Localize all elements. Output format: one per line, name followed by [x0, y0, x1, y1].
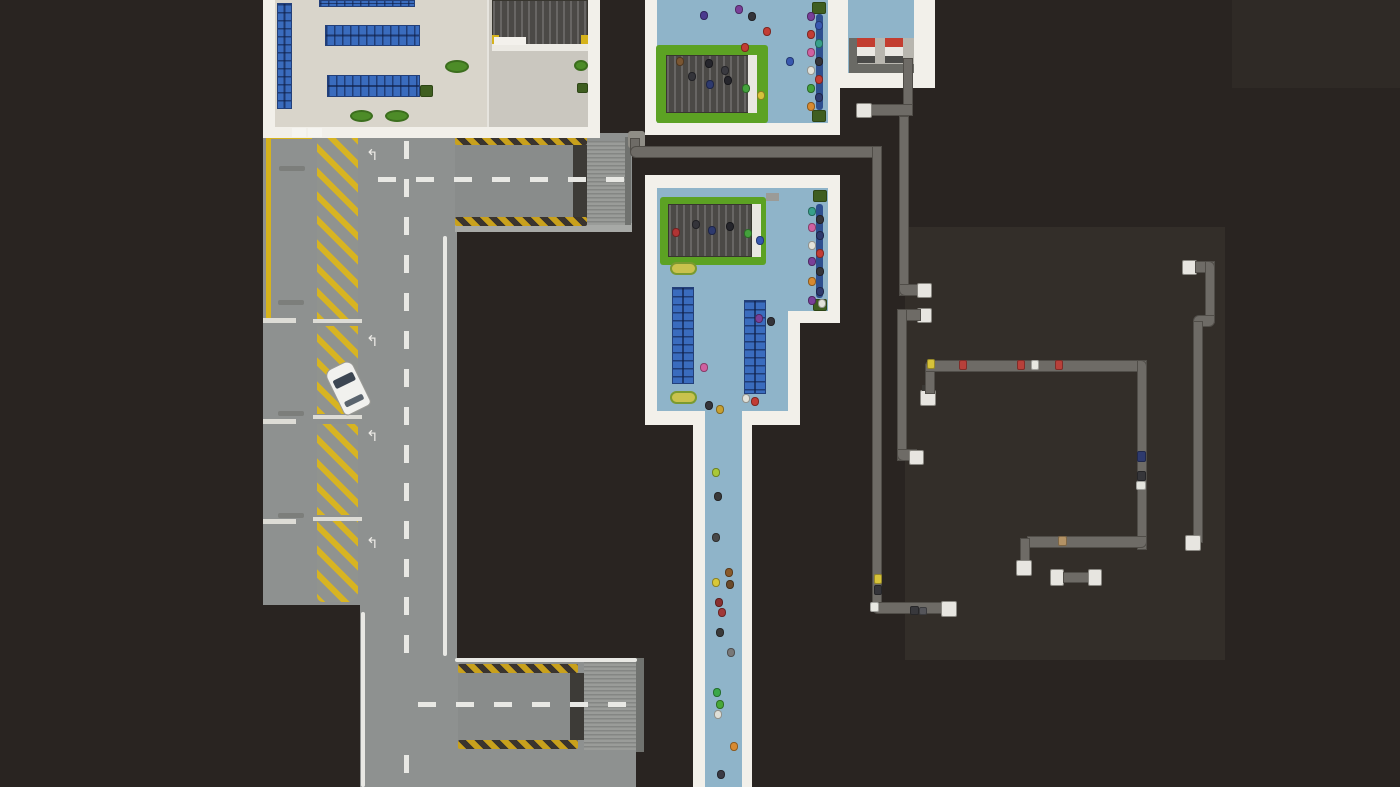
- corridor-floor: [705, 404, 742, 787]
- passenger[interactable]: [735, 5, 743, 14]
- passenger[interactable]: [706, 80, 714, 89]
- passenger[interactable]: [808, 257, 816, 266]
- belt-cap[interactable]: [917, 283, 932, 298]
- lane-dash-bottom-arm: [418, 702, 636, 707]
- passenger[interactable]: [808, 223, 816, 232]
- passenger[interactable]: [718, 608, 726, 617]
- passenger[interactable]: [714, 710, 722, 719]
- passenger[interactable]: [741, 43, 749, 52]
- bench[interactable]: [670, 262, 697, 275]
- passenger[interactable]: [756, 236, 764, 245]
- belt-cap[interactable]: [1088, 569, 1102, 586]
- passenger[interactable]: [808, 207, 816, 216]
- belt-cap[interactable]: [856, 103, 872, 118]
- lane-line-arm-top: [455, 658, 637, 662]
- passenger[interactable]: [742, 394, 750, 403]
- queue-plant-mid-top[interactable]: [813, 190, 827, 202]
- ramp-bottom-wall: [636, 658, 644, 752]
- passenger[interactable]: [713, 688, 721, 697]
- passenger[interactable]: [715, 598, 723, 607]
- passenger[interactable]: [725, 568, 733, 577]
- passenger[interactable]: [730, 742, 738, 751]
- checkin-desk-column[interactable]: [277, 3, 292, 109]
- passenger[interactable]: [724, 76, 732, 85]
- planter[interactable]: [577, 83, 588, 93]
- escalator-housing: [492, 44, 588, 51]
- scanner-machine-2-base: [885, 56, 903, 63]
- passenger[interactable]: [705, 59, 713, 68]
- ramp-bottom-caution-north: [458, 664, 578, 673]
- passenger[interactable]: [742, 84, 750, 93]
- parking-divider-3: [263, 519, 296, 524]
- game-canvas[interactable]: ↰↰↰↰: [0, 0, 1400, 787]
- baggage: [927, 359, 935, 369]
- hazard-zebra-3: [317, 424, 358, 515]
- passenger[interactable]: [807, 12, 815, 21]
- baggage: [874, 585, 882, 595]
- scanner-machine-1-top[interactable]: [857, 38, 875, 47]
- scanner-machine-1-base: [857, 56, 875, 63]
- belt-transfer-segment[interactable]: [1063, 572, 1089, 583]
- ramp-top-grate: [587, 141, 625, 225]
- passenger[interactable]: [748, 12, 756, 21]
- parking-stand-marker-2: [278, 300, 304, 305]
- scanner-machine-2-body[interactable]: [885, 47, 903, 56]
- parking-stand-marker-4: [278, 513, 304, 518]
- belt-cap[interactable]: [941, 601, 957, 617]
- belt-g-upper[interactable]: [1205, 261, 1215, 323]
- terminal-divider-line: [487, 0, 489, 127]
- passenger[interactable]: [815, 93, 823, 102]
- seating-bank-2[interactable]: [744, 300, 766, 394]
- passenger[interactable]: [767, 317, 775, 326]
- belt-cap[interactable]: [1050, 569, 1064, 586]
- escalator-tray: [494, 37, 526, 45]
- belt-cap[interactable]: [1016, 560, 1032, 576]
- escalator-north-comb: [748, 55, 757, 113]
- zone-baggage-overlay: [905, 227, 1225, 660]
- bay-line-2: [313, 415, 362, 419]
- passenger[interactable]: [808, 241, 816, 250]
- passenger[interactable]: [712, 468, 720, 477]
- passenger[interactable]: [692, 220, 700, 229]
- belt-cap[interactable]: [909, 450, 924, 465]
- passenger[interactable]: [808, 296, 816, 305]
- passenger[interactable]: [712, 533, 720, 542]
- belt-c-vertical[interactable]: [897, 309, 907, 461]
- lane-dash-vertical: [404, 141, 409, 655]
- road-column-upper: [263, 133, 457, 605]
- parking-stand-marker-1: [279, 166, 305, 171]
- planter[interactable]: [420, 85, 433, 97]
- passenger[interactable]: [815, 57, 823, 66]
- passenger[interactable]: [815, 39, 823, 48]
- passenger[interactable]: [816, 231, 824, 240]
- passenger[interactable]: [700, 363, 708, 372]
- bay-line-3: [313, 517, 362, 521]
- passenger[interactable]: [807, 30, 815, 39]
- passenger[interactable]: [815, 75, 823, 84]
- scanner-machine-1-body[interactable]: [857, 47, 875, 56]
- lane-line-right: [443, 236, 447, 656]
- checkin-desk-row-3[interactable]: [327, 75, 420, 97]
- bush[interactable]: [445, 60, 469, 73]
- ramp-top-surface: [455, 145, 573, 219]
- passenger[interactable]: [816, 215, 824, 224]
- terminal-door-1[interactable]: [292, 128, 306, 137]
- belt-cap[interactable]: [1185, 535, 1201, 551]
- queue-plant-north-top[interactable]: [812, 2, 826, 14]
- belt-g-lower[interactable]: [1193, 321, 1203, 543]
- bush[interactable]: [350, 110, 373, 122]
- passenger[interactable]: [807, 84, 815, 93]
- scanner-machine-2-top[interactable]: [885, 38, 903, 47]
- parking-yellow-edge: [266, 134, 271, 320]
- baggage: [1017, 360, 1025, 370]
- zone-top-right-overlay: [1232, 0, 1400, 88]
- passenger[interactable]: [676, 57, 684, 66]
- belt-b-vertical[interactable]: [899, 116, 909, 296]
- ramp-bottom-caution-south: [458, 740, 578, 749]
- ramp-top-caution-south: [455, 217, 587, 226]
- belt-d-vertical[interactable]: [872, 146, 882, 612]
- passenger[interactable]: [757, 91, 765, 100]
- parking-stand-marker-3: [278, 411, 304, 416]
- terminal-door-2[interactable]: [308, 128, 322, 137]
- escalator-mid-comb: [752, 204, 761, 257]
- passenger[interactable]: [807, 48, 815, 57]
- passenger[interactable]: [712, 578, 720, 587]
- baggage: [910, 606, 919, 615]
- passenger[interactable]: [716, 628, 724, 637]
- passenger[interactable]: [807, 102, 815, 111]
- baggage: [1031, 360, 1039, 370]
- baggage: [1058, 536, 1067, 546]
- lane-dash-vertical-lower: [404, 755, 409, 787]
- checkin-desk-row-1[interactable]: [319, 0, 415, 7]
- passenger[interactable]: [727, 648, 735, 657]
- passenger[interactable]: [700, 11, 708, 20]
- passenger[interactable]: [717, 770, 725, 779]
- bush[interactable]: [385, 110, 409, 122]
- passenger[interactable]: [818, 299, 826, 308]
- seating-bank-1[interactable]: [672, 287, 694, 384]
- passenger[interactable]: [744, 229, 752, 238]
- hazard-zebra-4: [317, 521, 358, 602]
- passenger[interactable]: [688, 72, 696, 81]
- lane-arrow-4: ↰: [366, 536, 382, 554]
- passenger[interactable]: [714, 492, 722, 501]
- passenger[interactable]: [755, 314, 763, 323]
- baggage: [959, 360, 967, 370]
- passenger[interactable]: [721, 66, 729, 75]
- passenger[interactable]: [816, 267, 824, 276]
- baggage: [1055, 360, 1063, 370]
- baggage: [1137, 471, 1146, 481]
- passenger[interactable]: [726, 580, 734, 589]
- passenger[interactable]: [816, 249, 824, 258]
- queue-plant-north-bottom[interactable]: [812, 110, 826, 122]
- passenger[interactable]: [672, 228, 680, 237]
- passenger[interactable]: [786, 57, 794, 66]
- lane-line-left: [361, 612, 365, 787]
- passenger[interactable]: [816, 287, 824, 296]
- lane-arrow-3: ↰: [366, 429, 382, 447]
- parking-divider-1: [263, 318, 296, 323]
- lane-arrow-1: ↰: [366, 148, 382, 166]
- baggage: [1137, 451, 1146, 462]
- passenger[interactable]: [751, 397, 759, 406]
- info-sign[interactable]: [766, 193, 779, 201]
- passenger[interactable]: [763, 27, 771, 36]
- baggage: [1136, 481, 1146, 490]
- passenger[interactable]: [716, 700, 724, 709]
- passenger[interactable]: [708, 226, 716, 235]
- bench[interactable]: [670, 391, 697, 404]
- passenger[interactable]: [726, 222, 734, 231]
- hazard-zebra-1: [317, 133, 358, 320]
- baggage: [870, 602, 879, 612]
- baggage: [919, 607, 927, 615]
- lane-arrow-2: ↰: [366, 334, 382, 352]
- checkin-desk-row-2[interactable]: [325, 25, 420, 46]
- passenger[interactable]: [808, 277, 816, 286]
- belt-d-horizontal[interactable]: [630, 146, 880, 158]
- passenger[interactable]: [705, 401, 713, 410]
- bush[interactable]: [574, 60, 588, 71]
- belt-f-west-run[interactable]: [1027, 536, 1147, 548]
- parking-divider-2: [263, 419, 296, 424]
- ramp-top-wedge: [573, 145, 587, 219]
- passenger[interactable]: [815, 21, 823, 30]
- passenger[interactable]: [807, 66, 815, 75]
- baggage: [874, 574, 882, 584]
- lane-dash-top-arm: [340, 177, 632, 182]
- bay-line-1: [313, 319, 362, 323]
- passenger[interactable]: [716, 405, 724, 414]
